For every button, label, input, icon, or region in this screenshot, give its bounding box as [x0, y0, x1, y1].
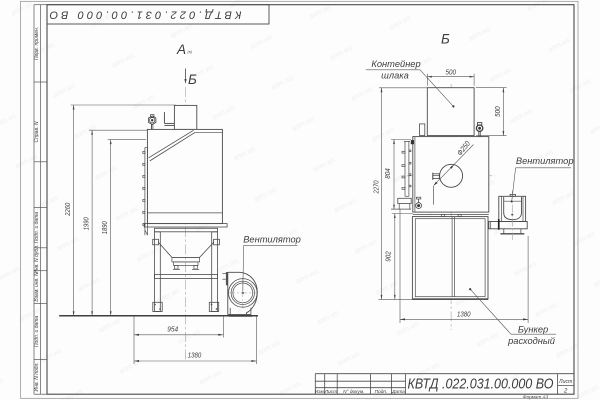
svg-text:2: 2: [563, 388, 568, 394]
svg-text:1990: 1990: [81, 217, 90, 231]
svg-text:Подп.: Подп.: [375, 389, 388, 395]
svg-text:Контейнер: Контейнер: [371, 59, 420, 69]
svg-text:Инв. N дубл.: Инв. N дубл.: [34, 245, 40, 274]
svg-text:Взам. инв. N: Взам. инв. N: [34, 272, 40, 302]
svg-text:Подп. и дата: Подп. и дата: [34, 212, 40, 244]
svg-text:N° докум.: N° докум.: [343, 389, 364, 395]
svg-text:Инв. N подл.: Инв. N подл.: [34, 362, 40, 391]
svg-text:500: 500: [493, 106, 502, 117]
svg-text:Справ. N: Справ. N: [34, 121, 40, 142]
svg-text:Изм.: Изм.: [315, 389, 325, 395]
svg-text:Дата: Дата: [391, 389, 405, 395]
svg-text:Подп. и дата: Подп. и дата: [34, 316, 40, 348]
svg-text:1890: 1890: [100, 221, 109, 235]
svg-text:Вентилятор: Вентилятор: [516, 156, 574, 166]
svg-text:А: А: [176, 42, 186, 57]
svg-text:954: 954: [167, 324, 178, 333]
svg-text:Б: Б: [441, 32, 450, 47]
svg-text:(в): (в): [188, 50, 192, 54]
svg-text:1380: 1380: [457, 309, 471, 318]
svg-text:2270: 2270: [372, 180, 381, 194]
svg-text:КВТД .022.031.00.000 ВО: КВТД .022.031.00.000 ВО: [408, 377, 554, 393]
svg-text:Бункер: Бункер: [518, 324, 548, 334]
svg-text:Вентилятор: Вентилятор: [243, 235, 301, 245]
svg-text:Перв. примен.: Перв. примен.: [34, 27, 40, 60]
svg-text:Лист: Лист: [324, 389, 337, 395]
svg-text:1380: 1380: [188, 351, 202, 360]
svg-text:шлака: шлака: [381, 71, 409, 81]
svg-text:2260: 2260: [63, 202, 72, 216]
svg-text:Лист: Лист: [558, 379, 573, 385]
svg-text:500: 500: [445, 67, 456, 76]
svg-text:Формат А3: Формат А3: [523, 394, 549, 399]
svg-text:Б: Б: [188, 72, 197, 87]
svg-text:902: 902: [384, 251, 393, 262]
svg-text:расходный: расходный: [507, 336, 555, 346]
svg-text:804: 804: [383, 168, 392, 179]
